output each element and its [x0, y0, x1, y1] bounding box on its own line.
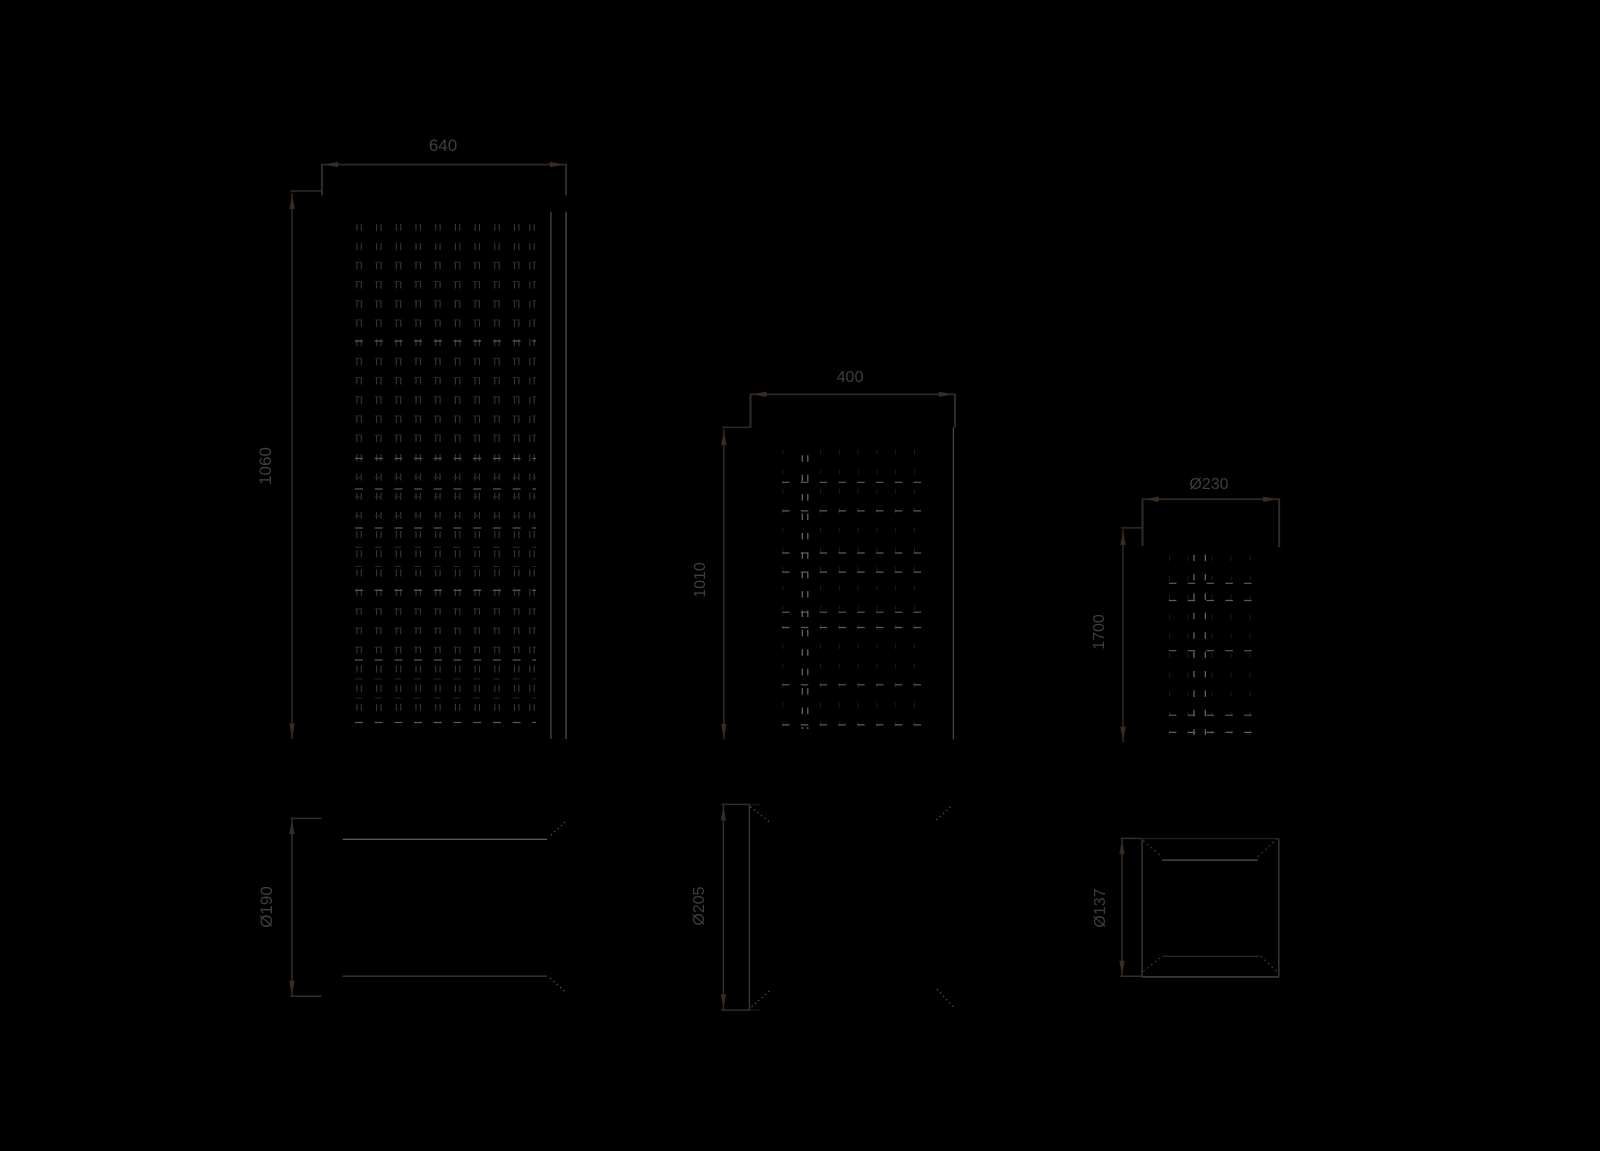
svg-text:Ø137: Ø137: [1092, 888, 1109, 927]
svg-text:640: 640: [429, 136, 457, 155]
svg-text:1010: 1010: [692, 562, 709, 598]
svg-text:Ø205: Ø205: [691, 886, 708, 925]
svg-text:Ø190: Ø190: [257, 886, 276, 928]
svg-text:1060: 1060: [256, 447, 275, 485]
svg-text:1700: 1700: [1091, 614, 1108, 650]
svg-text:Ø230: Ø230: [1189, 476, 1228, 493]
svg-text:400: 400: [837, 369, 864, 386]
